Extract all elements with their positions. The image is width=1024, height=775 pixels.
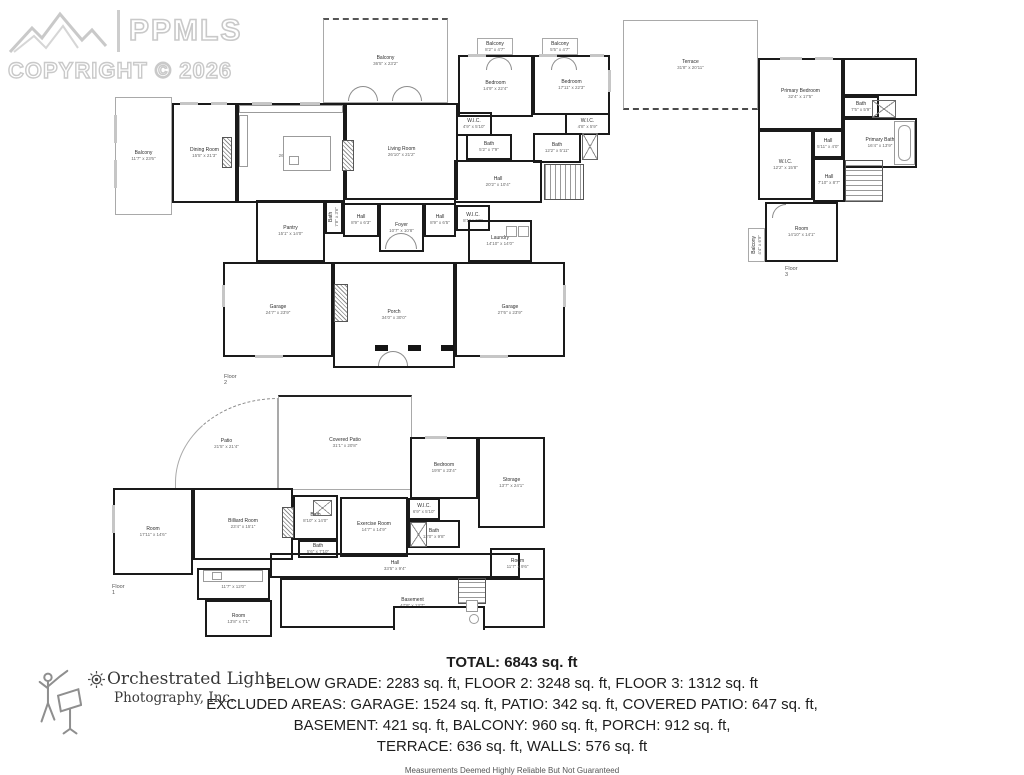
floor3-wic: W.I.C.12'2" x 15'8" [758,130,813,200]
porch-column [441,345,454,351]
window [608,70,611,92]
floor1-covered-patio: Covered Patio31'1" x 20'8" [278,395,412,490]
floor3-stairs [845,160,883,202]
shower-icon [313,500,332,516]
floor3-hall-top: Hall5'11" x 4'0" [813,130,843,158]
floor2-balcony-bed2: Balcony5'5" x 4'7" [542,38,578,55]
shower-icon [582,133,598,160]
utility-box-icon [466,600,478,612]
window [815,57,833,60]
window [590,54,604,57]
floor1-label: Floor 1 [112,584,125,596]
watermark-divider [117,10,120,52]
floor1-patio: Patio21'5" x 21'4" [175,398,278,490]
window [539,54,557,57]
bathtub-icon [894,121,915,165]
window [114,115,117,143]
floor2-bath-3: Bath7'8" x 3'6" [325,200,343,234]
floor2-hall-left: Hall8'9" x 6'3" [343,203,379,237]
fireplace-hatch [222,137,232,168]
watermark-copyright: COPYRIGHT © 2026 [8,58,242,84]
floor2-wic-1: W.I.C.4'9" x 5'10" [456,112,492,136]
ppmls-watermark: PPMLS COPYRIGHT © 2026 [8,6,242,84]
window [180,102,198,105]
floor2-garage-right: Garage27'6" x 23'9" [455,262,565,357]
credit-name-text: Orchestrated Light [107,668,272,690]
floor3-balcony: Balcony4'4" x 6'9" [748,228,765,262]
floor3-primary-bedroom: Primary Bedroom32'4" x 17'5" [758,58,843,130]
basement-chimney-hatch [282,507,294,538]
floor2-label: Floor 2 [224,374,237,386]
porch-chimney-hatch [334,284,348,322]
floor1-storage: Storage13'7" x 24'1" [478,437,545,528]
water-heater-icon [469,614,479,624]
window [480,355,508,358]
floor3-closet [843,58,917,96]
watermark-brand: PPMLS [129,14,242,48]
floor2-living-room: Living Room26'10" x 21'2" [345,103,458,200]
credit-subtitle-text: Photography, Inc. [88,690,272,706]
floor1-bedroom: Bedroom19'8" x 23'4" [410,437,478,499]
floor3-label: Floor 3 [785,266,798,278]
floor1-room-left: Room17'11" x 14'6" [113,488,193,575]
floor2-bath-1: Bath5'2" x 7'9" [466,134,512,160]
floor2-wic-2: W.I.C.4'8" x 5'9" [565,113,610,135]
window [112,505,115,533]
floor1-wic: W.I.C.6'9" x 5'10" [408,498,440,520]
island-sink-icon [289,156,299,165]
kitchen-counter [239,105,343,113]
window [563,285,566,307]
window [300,102,320,105]
sun-icon [88,671,105,688]
floor1-room-right: Room11'7" x 9'6" [490,548,545,580]
dryer-icon [518,226,529,237]
floor1-billiard-room: Billiard Room23'4" x 15'1" [193,488,293,560]
window [780,57,802,60]
floor2-hall-right: Hall8'9" x 6'5" [424,203,456,237]
fireplace-hatch [342,140,354,171]
floor2-stairs [544,164,584,200]
bar-sink-icon [212,572,222,580]
photographer-credit: Orchestrated Light Photography, Inc. [36,668,272,740]
floor2-bath-2: Bath12'2" x 5'11" [533,133,581,163]
floor2-hall-main: Hall20'2" x 10'4" [454,160,542,203]
washer-icon [506,226,517,237]
conductor-icon [36,668,82,740]
floor2-balcony-top: Balcony36'5" x 23'2" [323,18,448,103]
kitchen-island [283,136,331,171]
disclaimer: Measurements Deemed Highly Reliable But … [0,766,1024,775]
window [222,285,225,307]
mountains-icon [8,6,108,56]
porch-column [375,345,388,351]
floor2-balcony-bed1: Balcony8'2" x 4'7" [477,38,513,55]
shower-icon [872,100,896,118]
floor1-exercise-room: Exercise Room14'7" x 14'9" [340,497,408,557]
window [255,355,283,358]
window [211,102,227,105]
floor3-terrace: Terrace31'8" x 20'11" [623,20,758,110]
window [425,436,447,439]
shower-icon [410,522,427,547]
kitchen-cabinets [239,115,248,167]
floor2-pantry: Pantry15'1" x 14'0" [256,200,325,262]
porch-column [408,345,421,351]
floor3-hall: Hall7'10" x 8'7" [813,158,845,202]
floor2-garage-left: Garage24'7" x 23'9" [223,262,333,357]
window [468,54,486,57]
window [114,160,117,188]
floor2-balcony-left: Balcony11'7" x 23'6" [115,97,172,215]
floor1-room-bottom-left: Room13'8" x 7'1" [205,600,272,637]
floor1-hall: Hall33'5" x 9'4" [270,553,520,578]
window [252,102,272,105]
